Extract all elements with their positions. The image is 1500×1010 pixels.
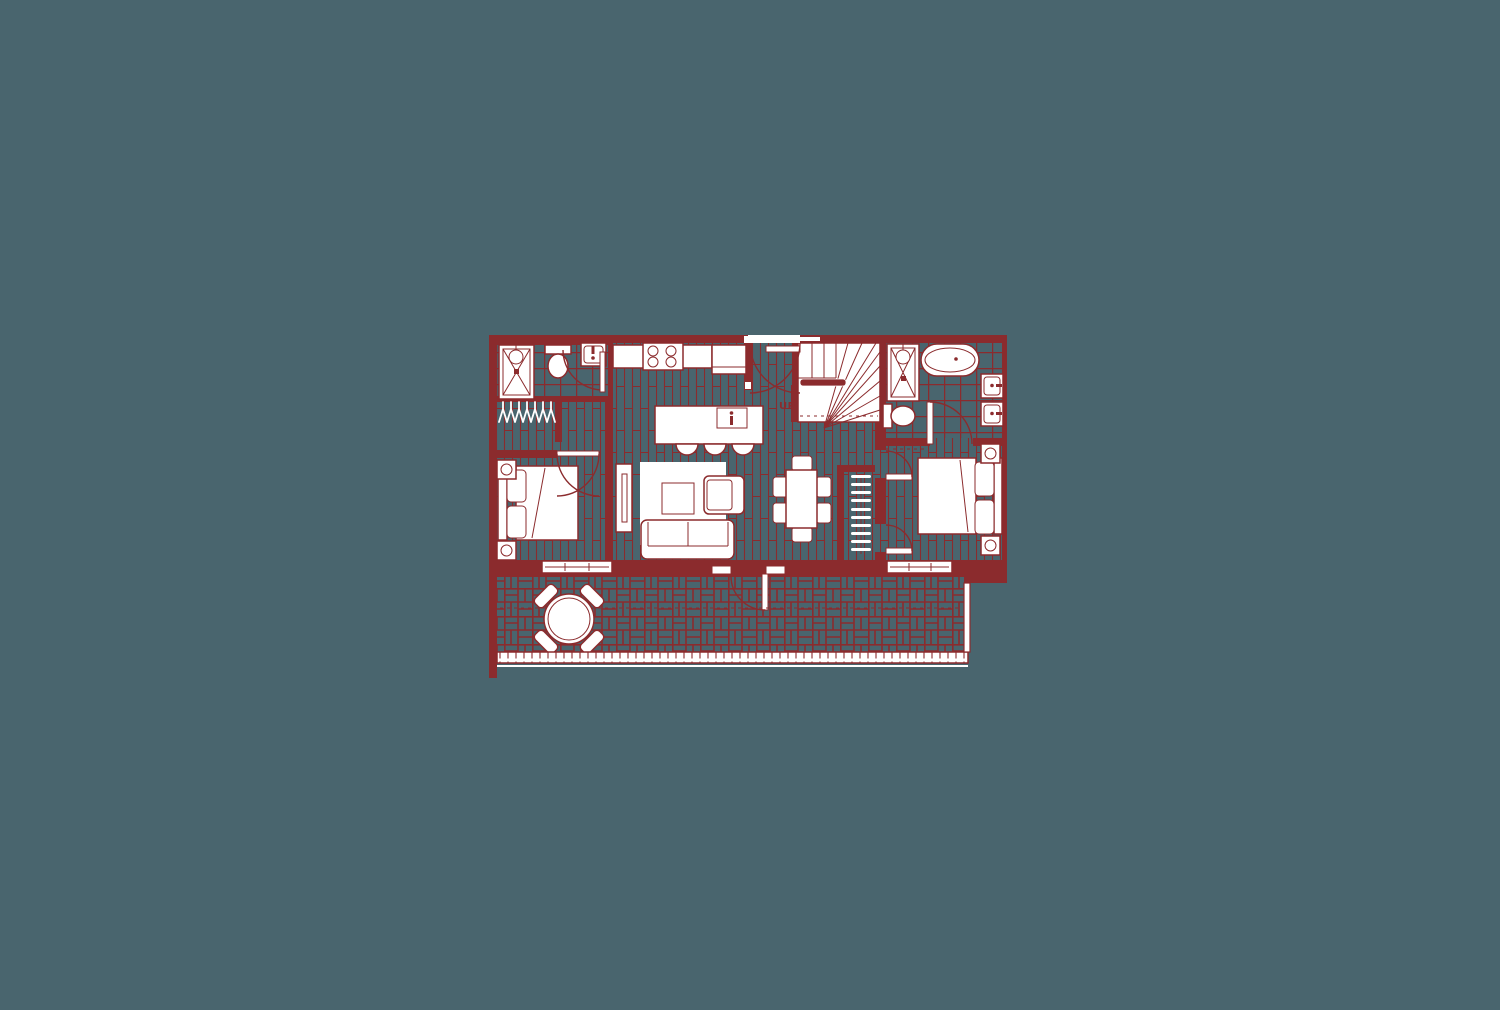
shower-right-icon — [887, 344, 919, 401]
tv-console — [616, 464, 632, 532]
bedroom-right-doorway2 — [875, 524, 886, 552]
cooktop-icon — [643, 343, 683, 370]
toilet-right-icon — [883, 404, 915, 428]
floor-plan-drawing: UP — [0, 0, 1500, 1010]
sofa — [641, 520, 734, 559]
balcony-railing-right — [964, 583, 970, 652]
bed-right — [918, 458, 1002, 534]
vanity-sink-icon — [981, 374, 1003, 398]
outdoor-dining-set — [533, 583, 606, 656]
coffee-table — [662, 483, 694, 514]
bathroom-right-doorway — [930, 438, 973, 446]
kitchen-island — [655, 406, 763, 444]
dining-chair — [816, 503, 831, 523]
nightstand-bottom-right — [981, 536, 1000, 555]
window-left — [542, 561, 612, 573]
refrigerator-icon — [712, 345, 746, 374]
armchair — [704, 476, 744, 514]
shower-left-icon — [499, 345, 534, 399]
nightstand-top-right — [981, 444, 1000, 463]
outdoor-table — [544, 594, 594, 644]
vanity-sink-icon — [981, 402, 1003, 426]
bathtub-icon — [921, 344, 979, 376]
bedroom-right-doorway1 — [875, 450, 886, 478]
bar-stools — [676, 444, 754, 455]
left-wall-strip — [489, 335, 497, 678]
balcony-railing-bottom — [497, 652, 968, 667]
dining-table — [786, 470, 817, 528]
nightstand-top-left — [497, 460, 516, 479]
window-right — [887, 561, 952, 573]
floor-plan-canvas: UP — [0, 0, 1500, 1010]
dining-chair — [792, 527, 812, 542]
stair-handrail — [800, 379, 846, 386]
dining-chair — [816, 477, 831, 497]
stairs-up-label: UP — [779, 401, 795, 412]
dining-chair — [792, 456, 812, 471]
nightstand-bottom-left — [497, 541, 516, 560]
